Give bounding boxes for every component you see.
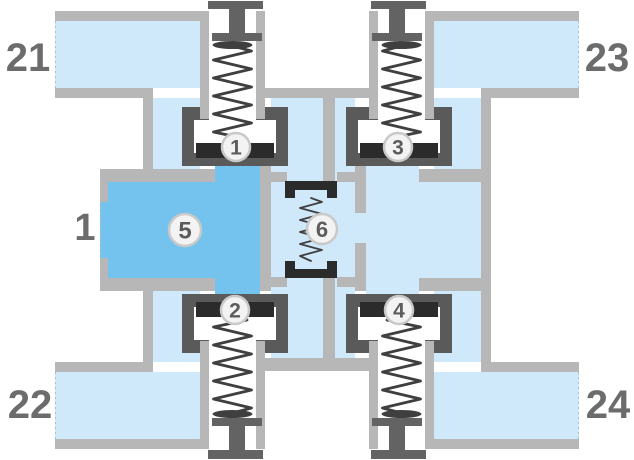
port-label-22: 22: [8, 383, 53, 427]
element-6-bottom-cap: [285, 269, 337, 278]
right-chamber-top-opening: [366, 166, 419, 182]
manifold-cross-section: 1 3 2 4 5 6 21 23 22 24 1: [0, 0, 634, 460]
duct-23-fluid: [434, 21, 579, 88]
port-label-1: 1: [74, 207, 95, 249]
right-chamber-fluid: [366, 182, 481, 278]
duct-24-fluid: [434, 372, 579, 439]
port-label-24: 24: [586, 383, 631, 427]
duct-22-fluid: [55, 372, 200, 439]
valve-1-number: 1: [230, 137, 242, 160]
center-right-gap-passage: [355, 213, 366, 243]
chamber-5-port-opening: [100, 202, 108, 258]
element-6-top-cap: [285, 181, 337, 190]
chamber-5-column-down: [215, 278, 260, 294]
valve-manifold-diagram: 1 3 2 4 5 6 21 23 22 24 1: [0, 0, 634, 460]
chamber-5-number: 5: [178, 218, 191, 245]
valve-2-number: 2: [229, 300, 241, 323]
chamber-5-column-up: [215, 166, 260, 182]
element-6-number: 6: [316, 217, 328, 242]
valve-4-number: 4: [393, 300, 405, 323]
valve-3-number: 3: [392, 137, 404, 160]
right-chamber-bottom-opening: [366, 278, 419, 294]
duct-21-fluid: [55, 21, 200, 88]
port-label-21: 21: [6, 36, 51, 80]
port-label-23: 23: [585, 36, 630, 80]
